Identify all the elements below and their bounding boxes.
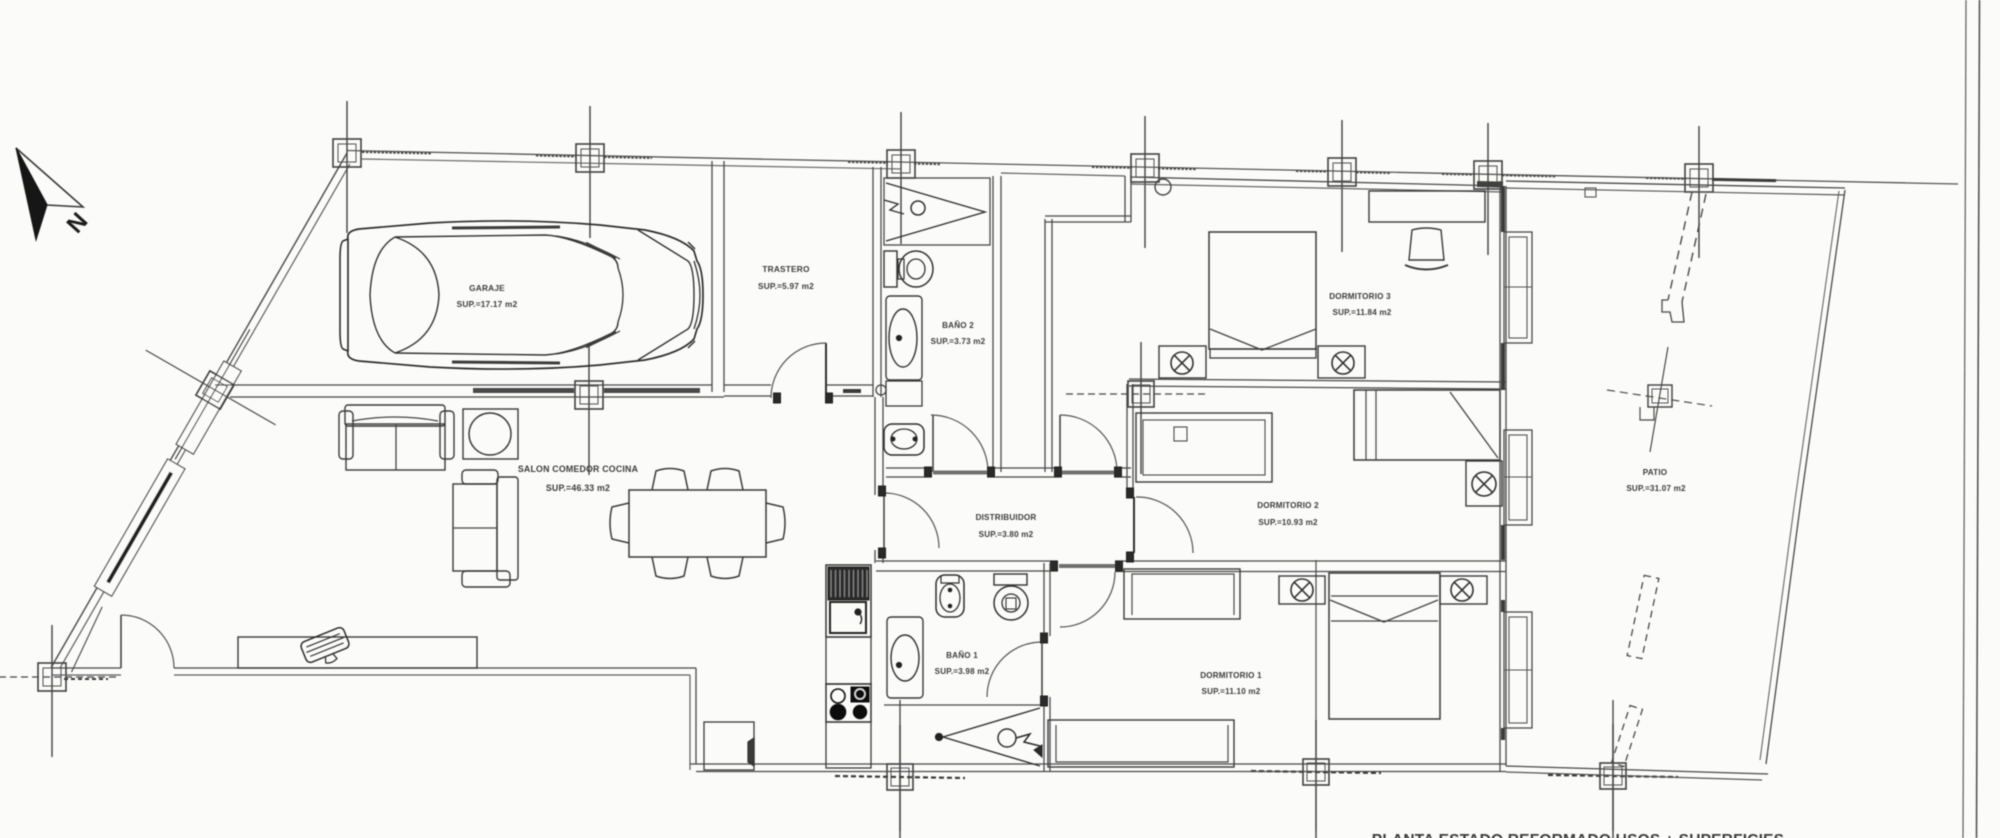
svg-text:DORMITORIO 2: DORMITORIO 2 — [1257, 501, 1319, 510]
svg-text:SUP.=10.93 m2: SUP.=10.93 m2 — [1258, 518, 1318, 527]
svg-text:SUP.=3.98 m2: SUP.=3.98 m2 — [935, 667, 990, 676]
svg-text:SUP.=11.84 m2: SUP.=11.84 m2 — [1333, 308, 1392, 317]
svg-text:GARAJE: GARAJE — [469, 283, 505, 293]
svg-text:SUP.=11.10 m2: SUP.=11.10 m2 — [1202, 687, 1261, 696]
svg-text:DORMITORIO 3: DORMITORIO 3 — [1329, 292, 1391, 301]
svg-text:DISTRIBUIDOR: DISTRIBUIDOR — [976, 513, 1037, 522]
svg-text:SUP.=5.97 m2: SUP.=5.97 m2 — [758, 281, 814, 291]
svg-text:SUP.=17.17 m2: SUP.=17.17 m2 — [457, 299, 518, 309]
svg-text:SUP.=3.73 m2: SUP.=3.73 m2 — [931, 337, 986, 346]
svg-text:SALON COMEDOR COCINA: SALON COMEDOR COCINA — [518, 464, 639, 474]
svg-text:BAÑO 1: BAÑO 1 — [946, 651, 978, 660]
svg-text:TRASTERO: TRASTERO — [762, 264, 810, 274]
svg-text:SUP.=3.80 m2: SUP.=3.80 m2 — [979, 530, 1034, 539]
svg-text:SUP.=46.33 m2: SUP.=46.33 m2 — [546, 483, 610, 493]
svg-text:BAÑO 2: BAÑO 2 — [942, 321, 974, 330]
svg-text:PLANTA ESTADO REFORMADO USOS +: PLANTA ESTADO REFORMADO USOS + SUPERFICI… — [1372, 832, 1784, 838]
svg-text:DORMITORIO 1: DORMITORIO 1 — [1200, 671, 1262, 680]
svg-text:SUP.=31.07 m2: SUP.=31.07 m2 — [1626, 484, 1686, 493]
svg-text:PATIO: PATIO — [1643, 468, 1668, 477]
